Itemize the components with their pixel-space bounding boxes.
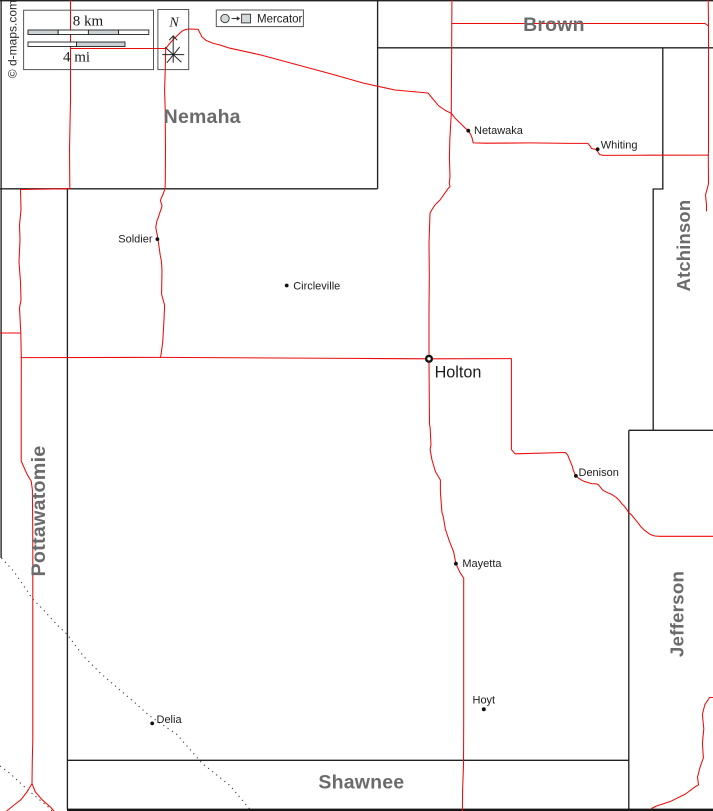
svg-text:Jefferson: Jefferson [667, 571, 688, 657]
svg-text:Soldier: Soldier [118, 234, 153, 246]
svg-text:© d-maps.com: © d-maps.com [6, 0, 20, 78]
svg-text:N: N [168, 16, 179, 31]
svg-text:Denison: Denison [579, 467, 619, 479]
svg-text:Circleville: Circleville [293, 281, 340, 293]
svg-text:Brown: Brown [523, 14, 585, 36]
svg-text:Whiting: Whiting [601, 140, 638, 152]
svg-text:4 mi: 4 mi [63, 50, 90, 66]
svg-text:Delia: Delia [157, 714, 183, 726]
svg-text:Hoyt: Hoyt [473, 694, 496, 706]
svg-text:Holton: Holton [435, 363, 482, 381]
svg-text:Mayetta: Mayetta [462, 558, 502, 570]
svg-text:Shawnee: Shawnee [318, 772, 404, 794]
svg-text:Pottawatomie: Pottawatomie [28, 446, 50, 577]
svg-text:Mercator: Mercator [257, 14, 303, 26]
svg-text:Nemaha: Nemaha [164, 106, 241, 128]
svg-text:Atchinson: Atchinson [673, 200, 694, 292]
svg-text:Netawaka: Netawaka [474, 125, 524, 137]
svg-text:8 km: 8 km [73, 14, 104, 30]
